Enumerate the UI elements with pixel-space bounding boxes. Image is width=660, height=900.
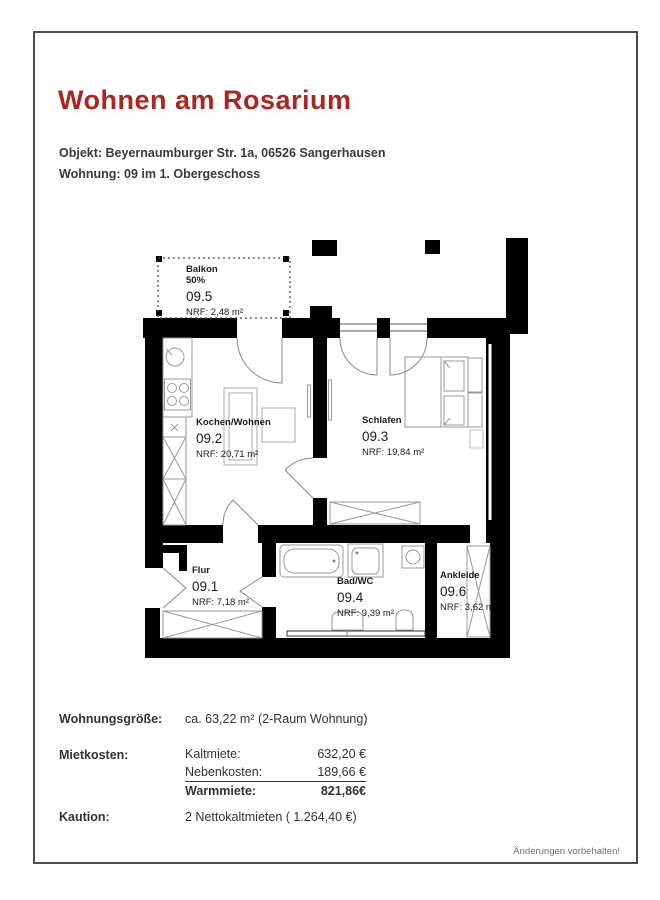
document-page: Wohnen am Rosarium Objekt: Beyernaumburg…: [0, 0, 660, 900]
room-name: Ankleide: [440, 570, 492, 581]
hall-wardrobe: [163, 611, 262, 638]
rent-label: Mietkosten:: [59, 748, 128, 762]
room-number: 09.5: [186, 289, 243, 305]
room-name: Kochen/Wohnen: [196, 417, 271, 428]
size-label: Wohnungsgröße:: [59, 712, 162, 726]
object-info: Objekt: Beyernaumburger Str. 1a, 06526 S…: [59, 143, 386, 184]
room-label-ankleide: Ankleide 09.6 NRF: 3,62 m²: [440, 570, 492, 614]
unit-line: Wohnung: 09 im 1. Obergeschoss: [59, 164, 386, 185]
page-title: Wohnen am Rosarium: [58, 85, 352, 116]
rent-item-label: Nebenkosten:: [185, 764, 262, 782]
room-name: Schlafen: [362, 415, 424, 426]
rent-item-label: Kaltmiete:: [185, 746, 241, 764]
deposit-value: 2 Nettokaltmieten ( 1.264,40 €): [185, 810, 357, 824]
rent-item-value: 632,20 €: [317, 746, 366, 764]
rent-row-kaltmiete: Kaltmiete: 632,20 €: [185, 746, 366, 764]
room-label-bad-wc: Bad/WC 09.4 NRF: 9,39 m²: [337, 576, 394, 620]
window-slit: [489, 344, 492, 520]
room-area: NRF: 3,62 m²: [440, 602, 492, 614]
room-sub: 50%: [186, 275, 243, 286]
deposit-label: Kaution:: [59, 810, 110, 824]
room-area: NRF: 9,39 m²: [337, 608, 394, 620]
room-area: NRF: 7,18 m²: [192, 597, 249, 609]
room-label-flur: Flur 09.1 NRF: 7,18 m²: [192, 565, 249, 609]
room-area: NRF: 2,48 m²: [186, 307, 243, 319]
rent-row-nebenkosten: Nebenkosten: 189,66 €: [185, 764, 366, 783]
size-value: ca. 63,22 m² (2-Raum Wohnung): [185, 712, 368, 726]
room-number: 09.1: [192, 579, 249, 595]
object-line: Objekt: Beyernaumburger Str. 1a, 06526 S…: [59, 143, 386, 164]
kitchen-fixtures: [163, 338, 192, 525]
footer-note: Änderungen vorbehalten!: [513, 846, 620, 857]
room-area: NRF: 20,71 m²: [196, 449, 271, 461]
bath-lining: [287, 631, 425, 636]
room-number: 09.6: [440, 584, 492, 600]
room-label-kochen-wohnen: Kochen/Wohnen 09.2 NRF: 20,71 m²: [196, 417, 271, 461]
rent-item-value: 821,86€: [321, 783, 366, 801]
room-name: Bad/WC: [337, 576, 394, 587]
rent-item-label: Warmmiete:: [185, 783, 256, 801]
room-name: Balkon: [186, 264, 243, 275]
room-name: Flur: [192, 565, 249, 576]
room-number: 09.2: [196, 431, 271, 447]
rent-row-warmmiete: Warmmiete: 821,86€: [185, 782, 366, 801]
room-number: 09.4: [337, 590, 394, 606]
room-label-schlafen: Schlafen 09.3 NRF: 19,84 m²: [362, 415, 424, 459]
rent-item-value: 189,66 €: [317, 764, 366, 782]
room-number: 09.3: [362, 429, 424, 445]
room-label-balkon: Balkon 50% 09.5 NRF: 2,48 m²: [186, 264, 243, 319]
rent-table: Kaltmiete: 632,20 € Nebenkosten: 189,66 …: [185, 746, 366, 801]
room-area: NRF: 19,84 m²: [362, 447, 424, 459]
